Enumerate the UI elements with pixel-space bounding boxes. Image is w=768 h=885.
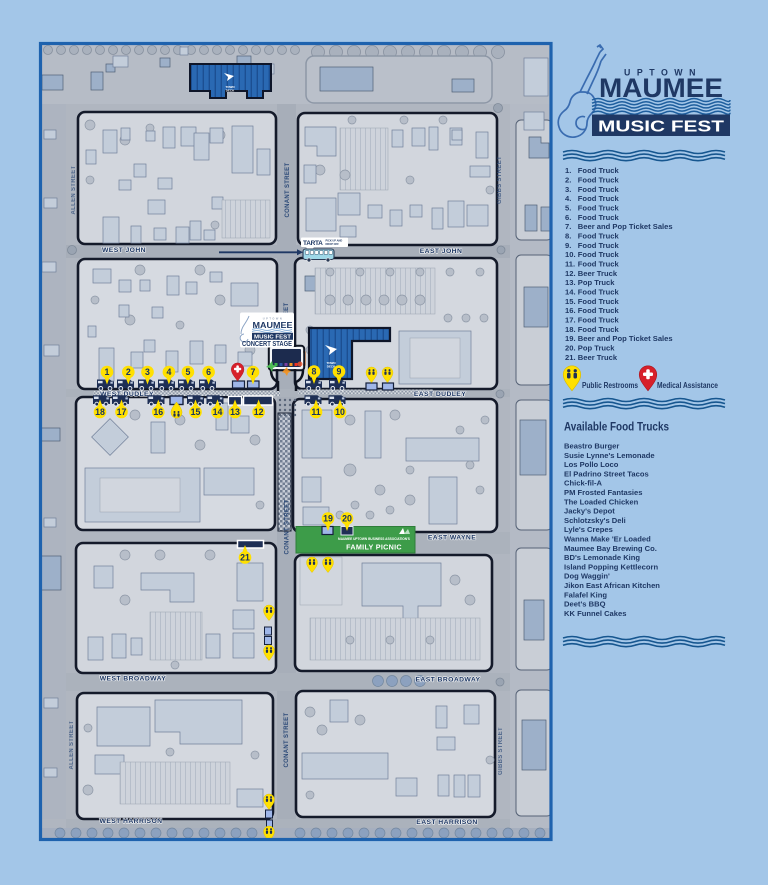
svg-text:Food Truck: Food Truck xyxy=(578,288,620,297)
svg-text:El Padrino Street Tacos: El Padrino Street Tacos xyxy=(564,469,649,478)
svg-text:ALLEN STREET: ALLEN STREET xyxy=(71,165,77,214)
svg-text:DROP OFF: DROP OFF xyxy=(326,242,340,246)
svg-text:MAUMEE: MAUMEE xyxy=(599,73,723,103)
svg-text:FAMILY PICNIC: FAMILY PICNIC xyxy=(346,543,402,552)
svg-text:8.: 8. xyxy=(565,232,571,241)
svg-text:3.: 3. xyxy=(565,185,571,194)
svg-text:CONANT STREET: CONANT STREET xyxy=(285,163,291,218)
svg-text:MUSIC FEST: MUSIC FEST xyxy=(598,119,724,136)
svg-text:19: 19 xyxy=(323,514,333,524)
svg-text:MAUMEE UPTOWN BUSINESS ASSOCIA: MAUMEE UPTOWN BUSINESS ASSOCIATION'S xyxy=(338,537,410,541)
svg-text:Schlotzsky's Deli: Schlotzsky's Deli xyxy=(564,516,626,525)
svg-text:10: 10 xyxy=(335,407,345,417)
svg-text:WEST DUDLEY: WEST DUDLEY xyxy=(100,391,154,398)
svg-text:7: 7 xyxy=(251,367,256,377)
svg-text:2.: 2. xyxy=(565,176,571,185)
svg-text:9: 9 xyxy=(337,367,342,377)
svg-text:20.: 20. xyxy=(565,344,576,353)
svg-text:Falafel King: Falafel King xyxy=(564,590,607,599)
svg-text:Maumee Bay Brewing Co.: Maumee Bay Brewing Co. xyxy=(564,544,657,553)
svg-text:WEST JOHN: WEST JOHN xyxy=(102,247,146,254)
svg-text:Dog Waggin': Dog Waggin' xyxy=(564,572,610,581)
svg-text:KK Funnel Cakes: KK Funnel Cakes xyxy=(564,609,626,618)
svg-text:3: 3 xyxy=(145,367,150,377)
svg-text:Beastro Burger: Beastro Burger xyxy=(564,442,619,451)
svg-text:CONCERT STAGE: CONCERT STAGE xyxy=(242,339,292,348)
svg-text:Food Truck: Food Truck xyxy=(578,232,620,241)
svg-text:Food Truck: Food Truck xyxy=(578,316,620,325)
svg-text:21.: 21. xyxy=(565,353,576,362)
svg-text:5.: 5. xyxy=(565,204,571,213)
svg-text:Island Popping Kettlecorn: Island Popping Kettlecorn xyxy=(564,562,658,571)
svg-text:Susie Lynne's Lemonade: Susie Lynne's Lemonade xyxy=(564,451,655,460)
svg-text:12.: 12. xyxy=(565,269,576,278)
svg-text:1: 1 xyxy=(105,367,110,377)
svg-text:11: 11 xyxy=(311,407,320,417)
svg-text:5: 5 xyxy=(185,367,190,377)
svg-text:10.: 10. xyxy=(565,250,576,259)
svg-text:2: 2 xyxy=(126,367,131,377)
svg-text:Food Truck: Food Truck xyxy=(578,166,620,175)
svg-text:4.: 4. xyxy=(565,194,571,203)
svg-text:BD's Lemonade King: BD's Lemonade King xyxy=(564,553,640,562)
svg-text:Food Truck: Food Truck xyxy=(578,176,620,185)
svg-text:18.: 18. xyxy=(565,325,576,334)
svg-text:Public Restrooms: Public Restrooms xyxy=(582,381,639,390)
svg-text:11.: 11. xyxy=(565,260,575,269)
svg-text:Jacky's Depot: Jacky's Depot xyxy=(564,507,615,516)
svg-text:6: 6 xyxy=(206,367,211,377)
svg-text:Food Truck: Food Truck xyxy=(578,260,620,269)
svg-text:EAST WAYNE: EAST WAYNE xyxy=(428,535,476,542)
svg-text:EAST DUDLEY: EAST DUDLEY xyxy=(414,391,466,398)
svg-text:CONANT STREET: CONANT STREET xyxy=(284,713,290,768)
svg-text:WEST HARRISON: WEST HARRISON xyxy=(100,818,163,825)
svg-text:EAST HARRISON: EAST HARRISON xyxy=(416,819,477,826)
svg-text:Wanna Make 'Er Loaded: Wanna Make 'Er Loaded xyxy=(564,535,651,544)
svg-text:13: 13 xyxy=(230,407,240,417)
svg-text:Los Pollo Loco: Los Pollo Loco xyxy=(564,460,619,469)
svg-text:6.: 6. xyxy=(565,213,571,222)
svg-text:Food Truck: Food Truck xyxy=(578,241,620,250)
svg-text:ALLEN STREET: ALLEN STREET xyxy=(69,720,75,769)
svg-text:GIBBS STREET: GIBBS STREET xyxy=(497,156,503,204)
svg-text:17: 17 xyxy=(117,407,127,417)
svg-text:Lyle's Crepes: Lyle's Crepes xyxy=(564,525,613,534)
svg-text:Food Truck: Food Truck xyxy=(578,194,620,203)
svg-text:GIBBS STREET: GIBBS STREET xyxy=(498,727,504,775)
svg-text:TARTA: TARTA xyxy=(303,240,323,247)
svg-text:Food Truck: Food Truck xyxy=(578,306,620,315)
svg-text:Beer and Pop Ticket Sales: Beer and Pop Ticket Sales xyxy=(578,334,673,343)
svg-text:9.: 9. xyxy=(565,241,571,250)
svg-text:Food Truck: Food Truck xyxy=(578,185,620,194)
svg-text:8: 8 xyxy=(312,367,317,377)
svg-text:Food Truck: Food Truck xyxy=(578,325,620,334)
svg-text:The Loaded Chicken: The Loaded Chicken xyxy=(564,497,639,506)
svg-text:15: 15 xyxy=(191,407,201,417)
svg-text:Beer and Pop Ticket Sales: Beer and Pop Ticket Sales xyxy=(578,222,673,231)
svg-text:EAST JOHN: EAST JOHN xyxy=(420,248,463,255)
svg-text:EAST BROADWAY: EAST BROADWAY xyxy=(416,677,481,684)
svg-text:14.: 14. xyxy=(565,288,576,297)
svg-text:CONANT STREET: CONANT STREET xyxy=(285,500,291,555)
svg-text:WEST BROADWAY: WEST BROADWAY xyxy=(100,676,167,683)
svg-text:14: 14 xyxy=(213,407,223,417)
svg-text:20: 20 xyxy=(342,514,352,524)
svg-text:UPTOWN: UPTOWN xyxy=(263,317,283,321)
svg-text:7.: 7. xyxy=(565,222,571,231)
svg-text:Food Truck: Food Truck xyxy=(578,204,620,213)
svg-text:Chick-fil-A: Chick-fil-A xyxy=(564,479,602,488)
svg-text:DECK: DECK xyxy=(226,89,235,93)
svg-text:4: 4 xyxy=(166,367,171,377)
svg-text:Pop Truck: Pop Truck xyxy=(578,344,615,353)
svg-text:Pop Truck: Pop Truck xyxy=(578,278,615,287)
svg-text:13.: 13. xyxy=(565,278,576,287)
svg-text:Food Truck: Food Truck xyxy=(578,297,620,306)
svg-text:17.: 17. xyxy=(565,316,576,325)
svg-text:15.: 15. xyxy=(565,297,576,306)
svg-text:19.: 19. xyxy=(565,334,576,343)
svg-text:12: 12 xyxy=(254,407,264,417)
svg-text:16: 16 xyxy=(153,407,163,417)
svg-text:18: 18 xyxy=(95,407,105,417)
svg-text:Jikon East African Kitchen: Jikon East African Kitchen xyxy=(564,581,660,590)
svg-text:Food Truck: Food Truck xyxy=(578,213,620,222)
svg-text:Deet's BBQ: Deet's BBQ xyxy=(564,600,606,609)
svg-text:Food Truck: Food Truck xyxy=(578,250,620,259)
svg-text:Medical Assistance: Medical Assistance xyxy=(657,381,719,390)
svg-text:1.: 1. xyxy=(565,166,571,175)
svg-text:Available Food Trucks: Available Food Trucks xyxy=(564,422,669,434)
svg-text:Beer Truck: Beer Truck xyxy=(578,353,618,362)
svg-text:Beer Truck: Beer Truck xyxy=(578,269,618,278)
svg-text:16.: 16. xyxy=(565,306,576,315)
svg-text:21: 21 xyxy=(240,553,250,563)
svg-text:PM Frosted Fantasies: PM Frosted Fantasies xyxy=(564,488,643,497)
